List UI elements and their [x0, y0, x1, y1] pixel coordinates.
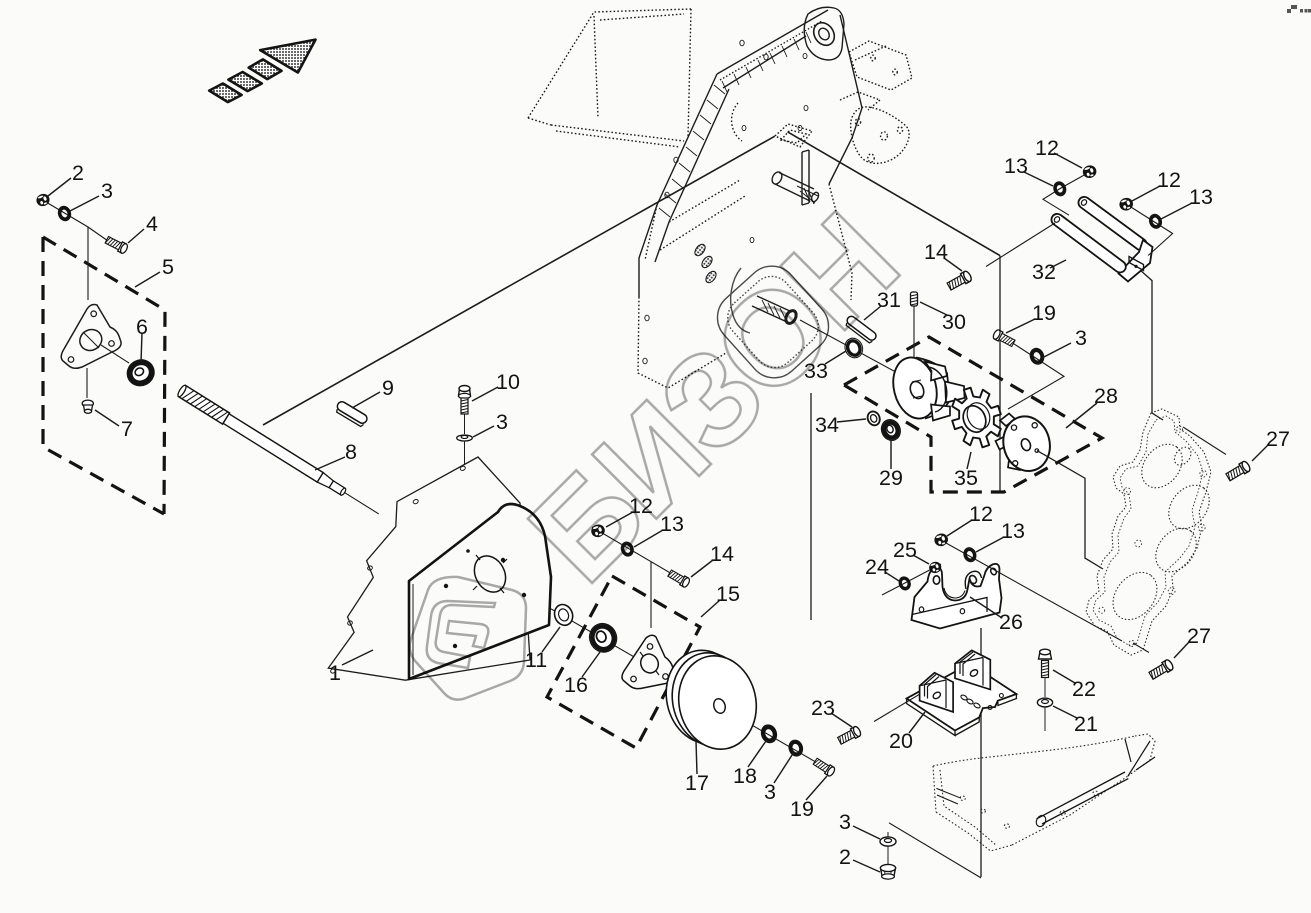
svg-text:6: 6 [136, 315, 148, 339]
svg-text:13: 13 [1001, 519, 1025, 543]
svg-text:7: 7 [121, 417, 133, 441]
svg-text:19: 19 [1032, 301, 1056, 325]
svg-text:1: 1 [329, 661, 341, 685]
svg-text:13: 13 [1004, 154, 1028, 178]
svg-text:9: 9 [382, 376, 394, 400]
svg-text:27: 27 [1266, 427, 1290, 451]
svg-text:16: 16 [564, 673, 588, 697]
svg-text:23: 23 [811, 696, 835, 720]
svg-text:25: 25 [893, 538, 917, 562]
svg-text:14: 14 [710, 542, 734, 566]
svg-text:34: 34 [815, 413, 839, 437]
svg-text:3: 3 [101, 179, 113, 203]
svg-text:5: 5 [162, 255, 174, 279]
svg-text:19: 19 [790, 797, 814, 821]
svg-text:18: 18 [733, 764, 757, 788]
svg-text:17: 17 [685, 771, 709, 795]
svg-text:29: 29 [879, 466, 903, 490]
svg-text:24: 24 [865, 555, 889, 579]
svg-text:3: 3 [1075, 326, 1087, 350]
svg-text:2: 2 [72, 161, 84, 185]
svg-text:26: 26 [999, 610, 1023, 634]
svg-text:27: 27 [1187, 624, 1211, 648]
svg-text:30: 30 [942, 310, 966, 334]
svg-text:12: 12 [1035, 136, 1059, 160]
svg-text:22: 22 [1072, 677, 1096, 701]
svg-text:28: 28 [1094, 384, 1118, 408]
svg-text:8: 8 [345, 440, 357, 464]
svg-text:3: 3 [839, 810, 851, 834]
svg-text:4: 4 [146, 212, 158, 236]
svg-text:10: 10 [496, 370, 520, 394]
svg-text:35: 35 [954, 466, 978, 490]
svg-text:15: 15 [716, 582, 740, 606]
svg-text:2: 2 [839, 845, 851, 869]
svg-text:13: 13 [1189, 185, 1213, 209]
svg-text:11: 11 [525, 648, 547, 672]
svg-text:12: 12 [969, 502, 993, 526]
svg-text:14: 14 [924, 240, 948, 264]
svg-text:32: 32 [1032, 260, 1056, 284]
svg-text:3: 3 [496, 410, 508, 434]
svg-text:21: 21 [1074, 712, 1098, 736]
svg-text:3: 3 [764, 780, 776, 804]
svg-text:20: 20 [889, 729, 913, 753]
svg-text:12: 12 [1157, 168, 1181, 192]
